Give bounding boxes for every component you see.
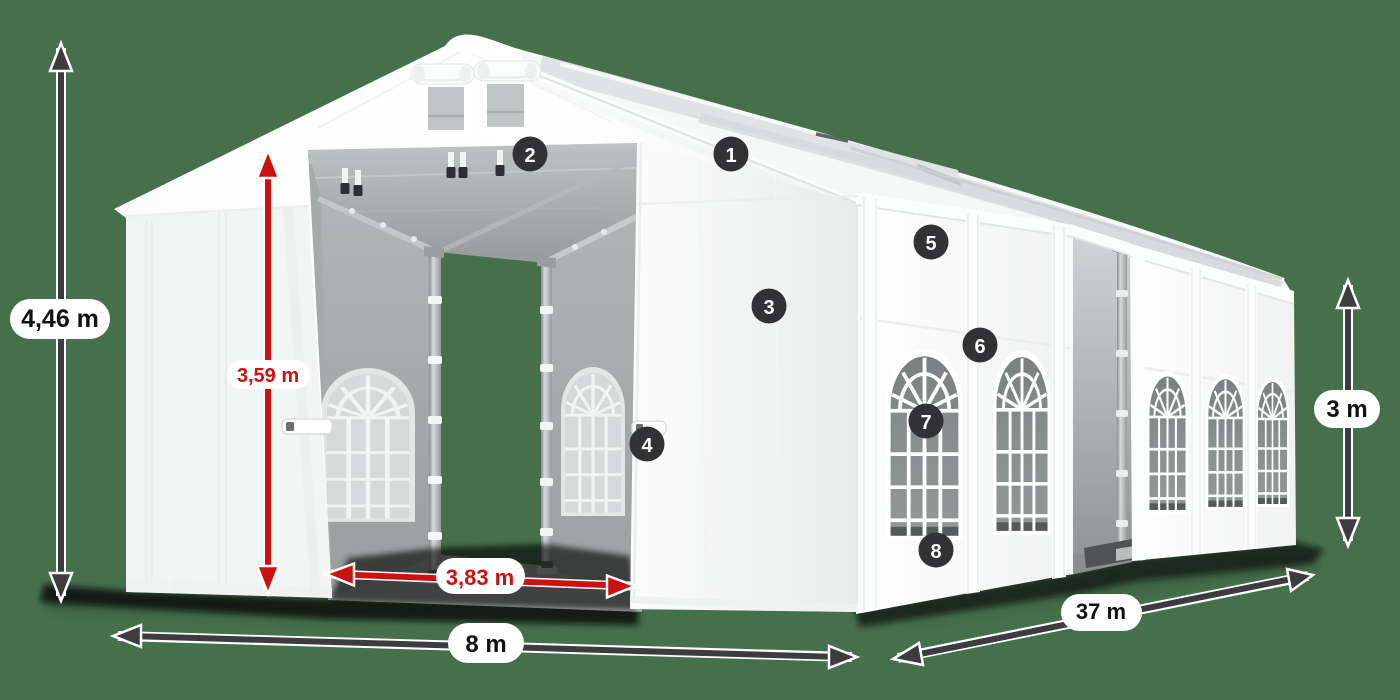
svg-text:2: 2 — [524, 145, 535, 167]
svg-text:3 m: 3 m — [1326, 396, 1367, 423]
svg-text:8 m: 8 m — [465, 631, 506, 658]
svg-text:6: 6 — [974, 336, 985, 358]
svg-text:4,46 m: 4,46 m — [21, 305, 99, 333]
svg-text:3: 3 — [763, 297, 774, 319]
svg-text:5: 5 — [925, 233, 936, 255]
svg-text:37 m: 37 m — [1076, 599, 1126, 624]
svg-text:1: 1 — [725, 145, 736, 167]
svg-text:3,59 m: 3,59 m — [237, 365, 299, 387]
svg-text:7: 7 — [920, 412, 931, 434]
svg-text:8: 8 — [930, 541, 941, 563]
svg-text:4: 4 — [641, 435, 653, 457]
svg-text:3,83 m: 3,83 m — [446, 565, 515, 590]
